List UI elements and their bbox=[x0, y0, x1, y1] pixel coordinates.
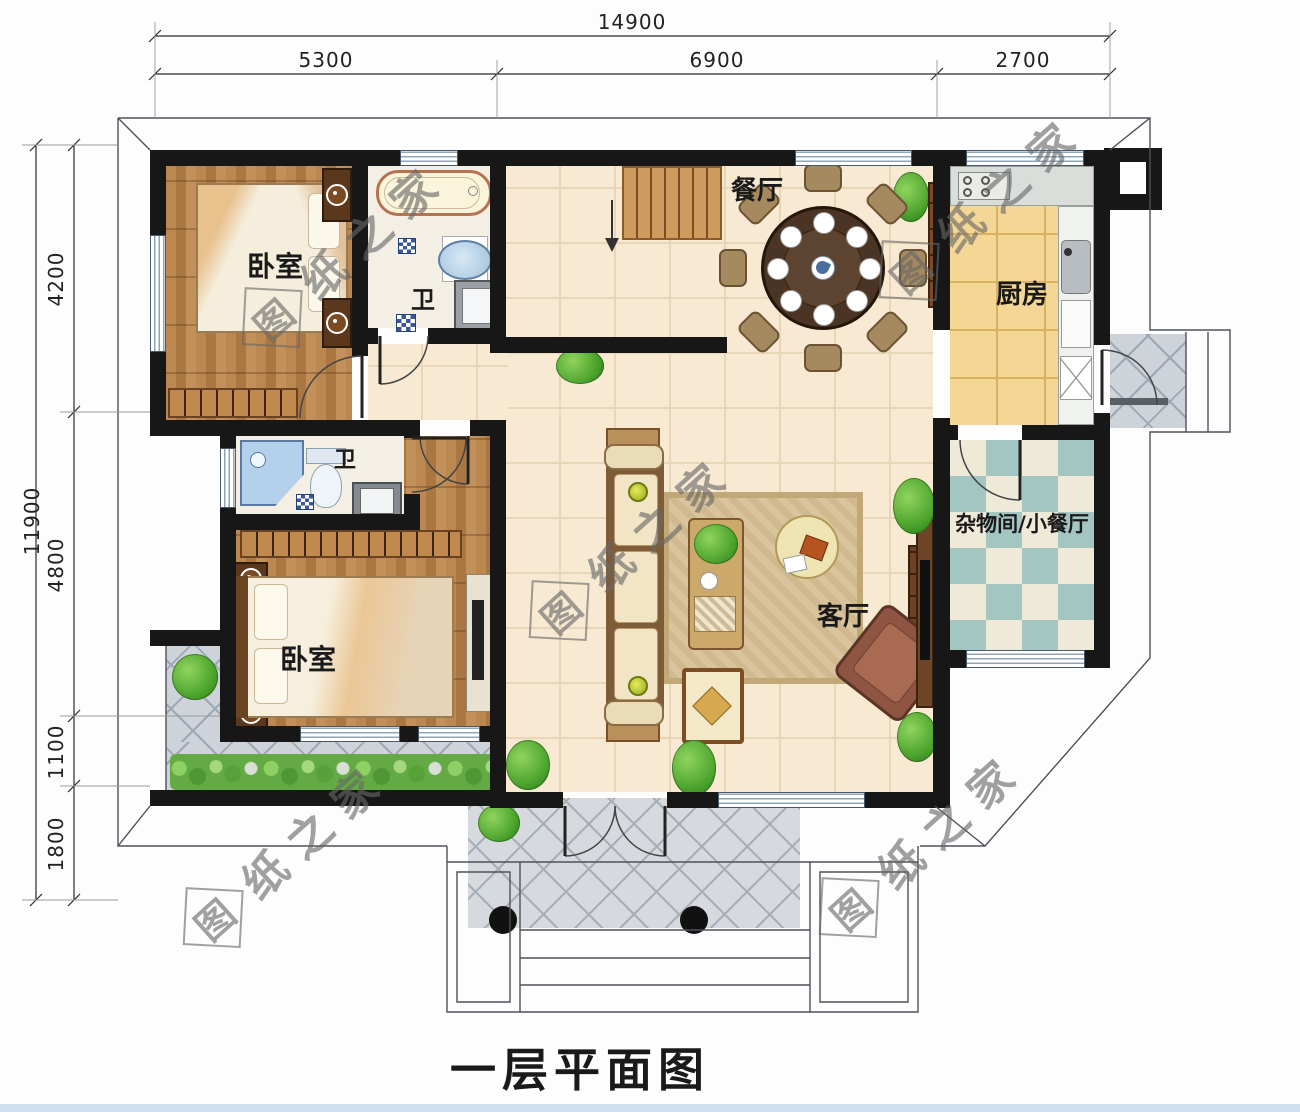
wall-segment bbox=[480, 726, 506, 742]
storage-floor bbox=[950, 440, 1094, 650]
room-label-storage: 杂物间/小餐厅 bbox=[947, 508, 1097, 538]
table-books bbox=[694, 596, 736, 632]
table-plant bbox=[694, 524, 738, 564]
dim-top-seg1: 5300 bbox=[276, 48, 376, 72]
wall-segment bbox=[220, 726, 300, 742]
faucet-icon bbox=[1064, 248, 1072, 256]
wall-segment bbox=[490, 166, 506, 337]
dining-chair bbox=[804, 164, 842, 192]
dim-left-seg3: 1100 bbox=[44, 712, 68, 792]
dim-left-seg4: 1800 bbox=[44, 804, 68, 884]
dim-top-seg3: 2700 bbox=[973, 48, 1073, 72]
wall-segment bbox=[933, 418, 950, 808]
watermark-box-glyph: 图 bbox=[819, 877, 880, 938]
drain-icon bbox=[468, 186, 478, 196]
room-label-dining: 餐厅 bbox=[731, 170, 783, 207]
window bbox=[418, 726, 480, 742]
bed-headboard bbox=[236, 576, 248, 718]
plate bbox=[846, 290, 868, 312]
plant bbox=[506, 740, 550, 790]
wall-segment bbox=[404, 494, 420, 530]
sofa-armrest bbox=[604, 700, 664, 726]
window bbox=[795, 150, 912, 166]
room-label-bath-top: 卫 bbox=[411, 280, 435, 315]
room-label-kitchen: 厨房 bbox=[996, 274, 1048, 311]
plate bbox=[780, 226, 802, 248]
floor-drain-icon bbox=[296, 494, 314, 510]
window bbox=[150, 235, 166, 352]
wall-segment bbox=[1022, 425, 1094, 440]
dining-chair bbox=[719, 249, 747, 287]
wall-segment bbox=[352, 328, 378, 344]
dim-top-total: 14900 bbox=[582, 10, 682, 34]
wall-segment bbox=[400, 726, 418, 742]
wall-segment bbox=[490, 337, 727, 353]
plate bbox=[780, 290, 802, 312]
window bbox=[220, 448, 236, 508]
wall-segment bbox=[667, 792, 718, 808]
plant bbox=[672, 740, 716, 796]
window bbox=[718, 792, 865, 808]
dim-left-seg1: 4200 bbox=[44, 239, 68, 319]
watermark-box-glyph: 图 bbox=[242, 287, 303, 348]
page-bottom-edge bbox=[0, 1104, 1300, 1112]
lamp-icon bbox=[326, 312, 348, 334]
wall-segment bbox=[404, 425, 420, 438]
porch-column bbox=[489, 906, 517, 934]
kitchen-cabinet-x bbox=[1060, 356, 1092, 400]
dim-left-total: 11900 bbox=[20, 471, 44, 571]
room-label-bath-bottom: 卫 bbox=[334, 442, 356, 474]
plant bbox=[897, 712, 937, 762]
window bbox=[966, 650, 1085, 668]
sofa-armrest bbox=[604, 444, 664, 470]
staircase bbox=[622, 166, 722, 240]
floor-plan-page: 卧室 卫 餐厅 厨房 杂物间/小餐厅 客厅 卧室 卫 14900 5300 69… bbox=[0, 0, 1300, 1112]
porch-column bbox=[680, 906, 708, 934]
window bbox=[300, 726, 400, 742]
wall-segment bbox=[950, 425, 958, 440]
wall-segment bbox=[1085, 650, 1110, 668]
dresser-chest bbox=[168, 388, 298, 418]
room-label-bedroom-bottom: 卧室 bbox=[280, 638, 336, 678]
side-porch-floor bbox=[1110, 334, 1186, 428]
terrace-plant bbox=[172, 654, 218, 700]
cup bbox=[700, 572, 718, 590]
porch-plant bbox=[478, 804, 520, 842]
plate bbox=[846, 226, 868, 248]
room-label-living: 客厅 bbox=[817, 596, 869, 633]
plant bbox=[556, 348, 604, 384]
pillow bbox=[254, 584, 288, 640]
dim-left-seg2: 4800 bbox=[44, 525, 68, 605]
floor-drain-icon bbox=[396, 314, 416, 332]
wall-segment bbox=[933, 650, 966, 668]
washing-machine-inner bbox=[360, 488, 394, 514]
plan-title: 一层平面图 bbox=[330, 1034, 830, 1100]
tv bbox=[920, 560, 930, 660]
hallway-floor bbox=[368, 344, 508, 420]
threshold bbox=[1110, 398, 1168, 405]
wall-segment bbox=[490, 420, 506, 808]
plant bbox=[893, 478, 935, 534]
plate bbox=[813, 212, 835, 234]
plate bbox=[767, 258, 789, 280]
watermark-box-glyph: 图 bbox=[529, 580, 590, 641]
clothes-rack bbox=[240, 530, 462, 558]
wall-segment bbox=[220, 508, 236, 742]
potted-plant bbox=[628, 676, 648, 696]
wall-segment bbox=[220, 514, 420, 530]
wall-segment bbox=[220, 425, 236, 448]
dim-top-seg2: 6900 bbox=[667, 48, 767, 72]
dresser-tv bbox=[472, 600, 484, 680]
wall-segment bbox=[150, 420, 420, 436]
shower-drain-icon bbox=[250, 452, 266, 468]
chimney-flue bbox=[1120, 162, 1146, 194]
wall-segment bbox=[490, 792, 563, 808]
plate bbox=[813, 304, 835, 326]
watermark-box-glyph: 图 bbox=[183, 887, 244, 948]
lamp-icon bbox=[326, 184, 348, 206]
dining-chair bbox=[804, 344, 842, 372]
watermark-box-glyph: 图 bbox=[879, 240, 940, 301]
wash-basin bbox=[438, 240, 492, 280]
kitchen-appliance bbox=[1061, 300, 1091, 348]
